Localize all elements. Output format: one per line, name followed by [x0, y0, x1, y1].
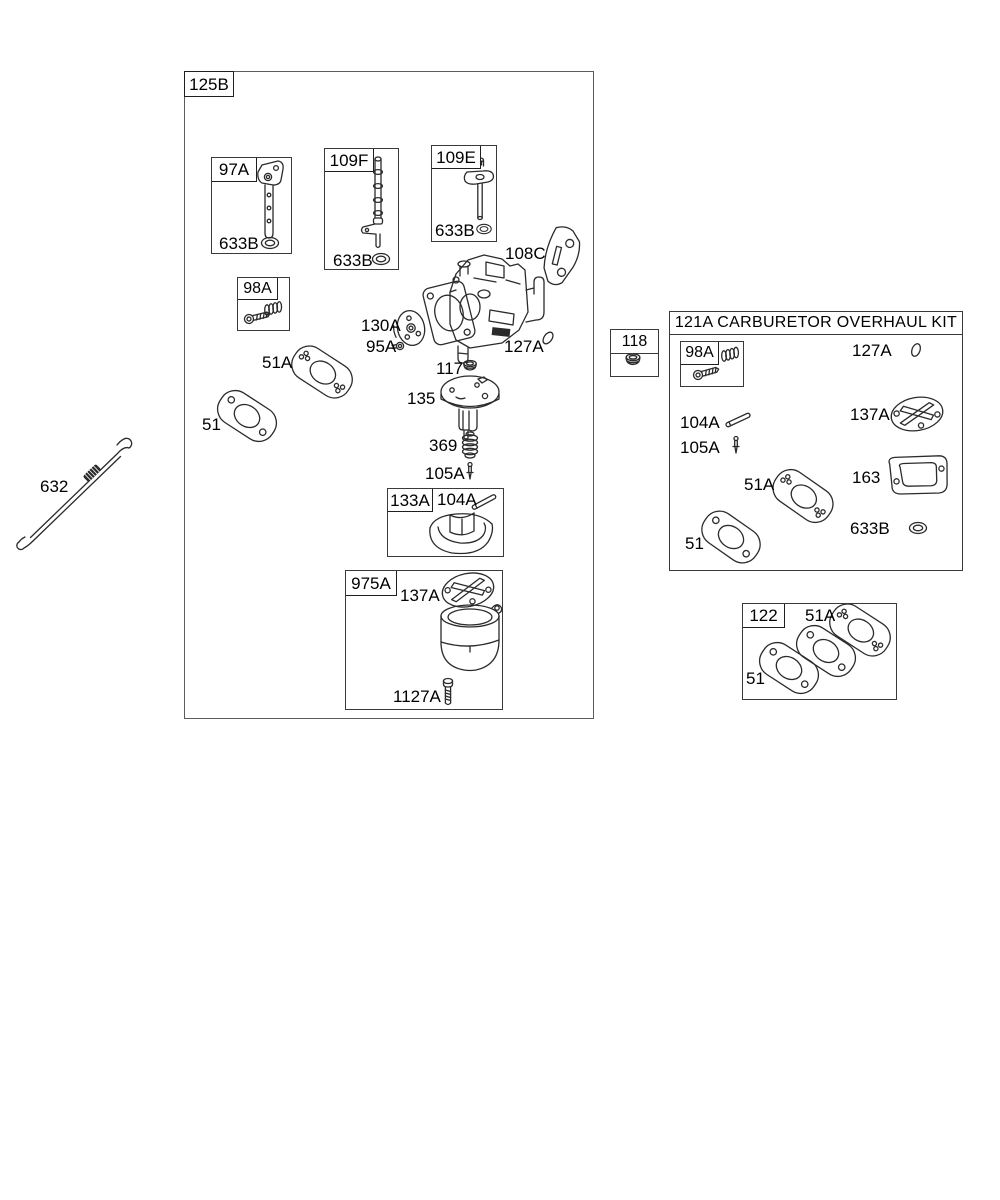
kit-label-104a: 104A [680, 414, 720, 431]
label-127a: 127A [504, 338, 544, 355]
label-95a: 95A [366, 338, 396, 355]
kit-label-105a: 105A [680, 439, 720, 456]
group-tag-125b: 125B [184, 71, 234, 97]
label-633b-109f: 633B [333, 252, 373, 269]
box-98a: 98A [237, 277, 290, 331]
tag-133a: 133A [388, 489, 433, 512]
label-105a: 105A [425, 465, 465, 482]
kit-label-51a: 51A [744, 476, 774, 493]
tag-109f: 109F [325, 149, 374, 172]
tag-975a: 975A [346, 571, 397, 596]
label-117: 117 [436, 360, 463, 377]
label-369: 369 [429, 437, 457, 454]
kit-label-163: 163 [852, 469, 880, 486]
tag-98a: 98A [238, 278, 278, 300]
label-51: 51 [202, 416, 221, 433]
kit-label-127a: 127A [852, 342, 892, 359]
kit-tag-98a: 98A [681, 342, 719, 365]
tag-118: 118 [611, 330, 658, 354]
label-137a: 137A [400, 587, 440, 604]
label-135: 135 [407, 390, 435, 407]
label-633b-97a: 633B [219, 235, 259, 252]
kit-title: 121A CARBURETOR OVERHAUL KIT [670, 312, 962, 335]
set-label-51a: 51A [805, 607, 835, 624]
tag-97a: 97A [212, 158, 257, 182]
tag-122: 122 [743, 604, 785, 628]
kit-label-137a: 137A [850, 406, 890, 423]
label-104a: 104A [437, 491, 477, 508]
label-633b-109e: 633B [435, 222, 475, 239]
label-130a: 130A [361, 317, 401, 334]
kit-label-51: 51 [685, 535, 704, 552]
label-51a: 51A [262, 354, 292, 371]
box-118: 118 [610, 329, 659, 377]
set-label-51: 51 [746, 670, 765, 687]
label-632: 632 [40, 478, 68, 495]
label-1127a: 1127A [393, 688, 441, 705]
kit-label-633b: 633B [850, 520, 890, 537]
parts-diagram-page: 125B 97A 633B 98A 109F 633B 109E 633B 10… [0, 0, 1000, 1200]
label-108c: 108C [505, 245, 546, 262]
tag-109e: 109E [432, 146, 481, 169]
governor-link-632-drawing [17, 438, 132, 549]
kit-box-98a: 98A [680, 341, 744, 387]
